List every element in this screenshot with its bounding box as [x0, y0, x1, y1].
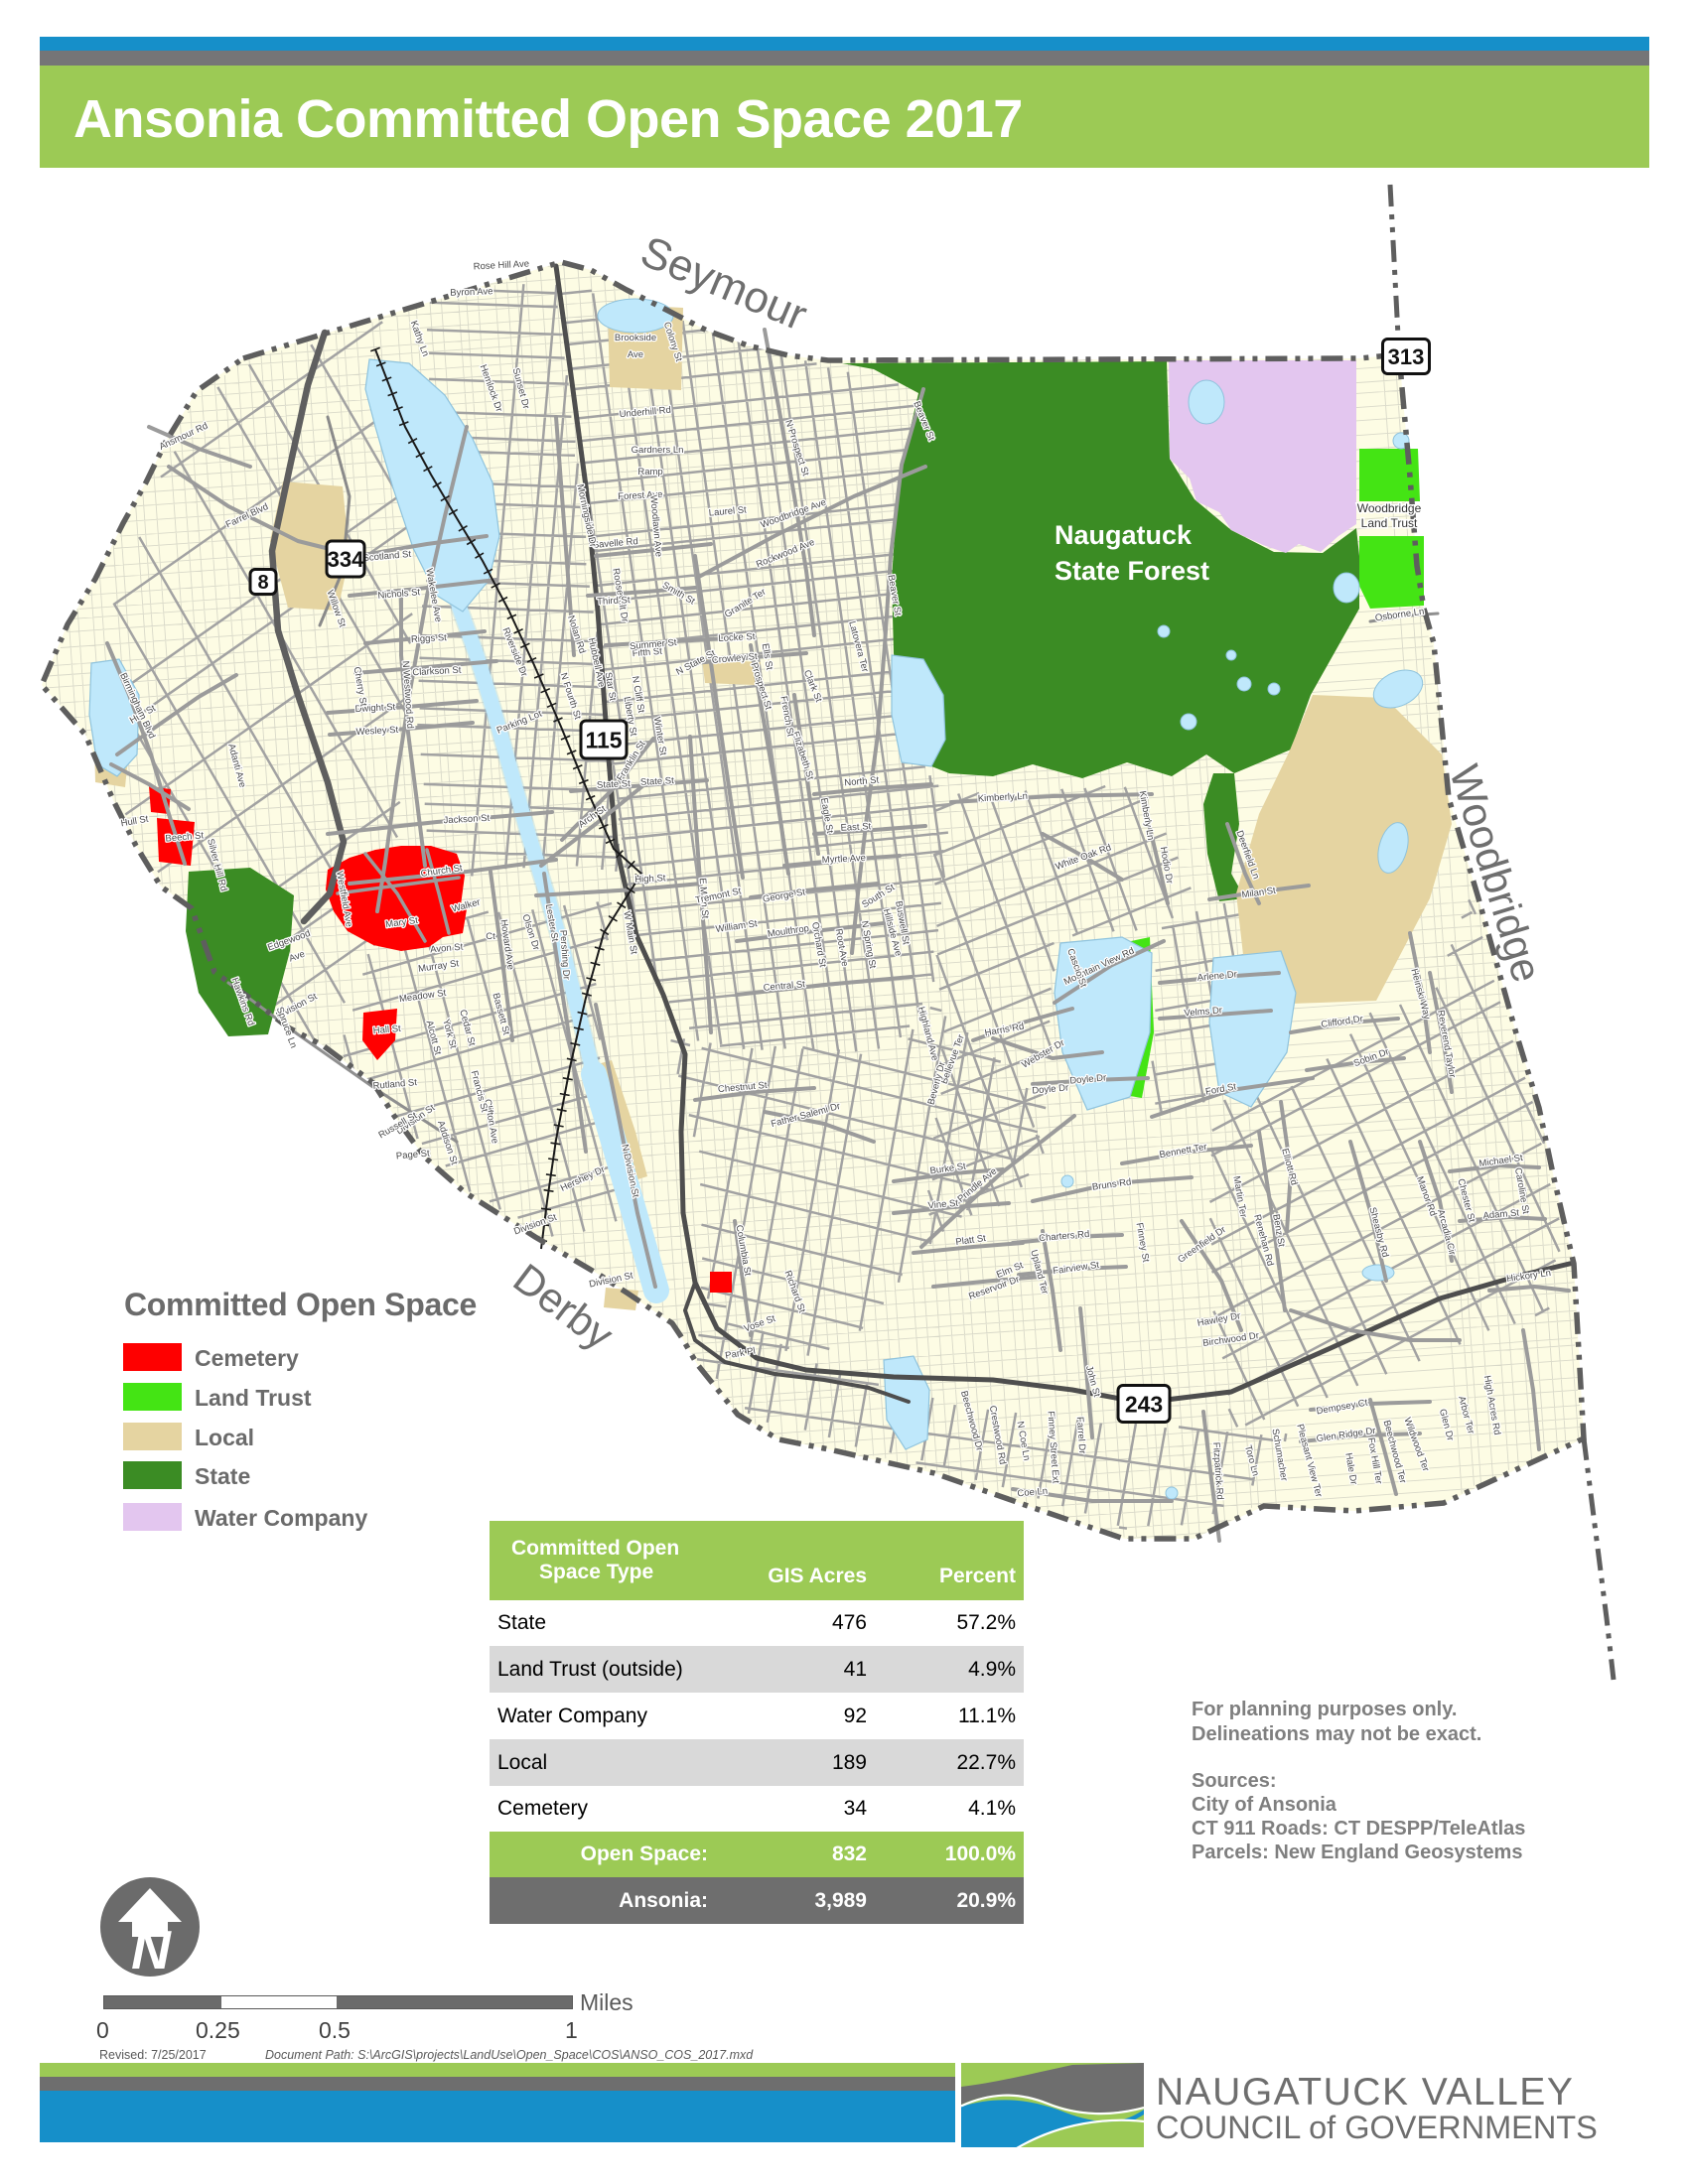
svg-text:Ramp: Ramp: [637, 467, 662, 478]
svg-text:East St: East St: [840, 821, 872, 834]
svg-text:N: N: [131, 1919, 172, 1979]
svg-text:334: 334: [328, 547, 364, 572]
svg-text:State Forest: State Forest: [1055, 556, 1209, 586]
svg-text:Ave: Ave: [628, 349, 643, 360]
svg-text:State St: State St: [640, 775, 675, 788]
svg-text:Riggs St: Riggs St: [411, 632, 448, 645]
svg-text:Woodbridge: Woodbridge: [1357, 501, 1422, 515]
svg-text:Land Trust: Land Trust: [1361, 516, 1418, 530]
svg-text:Ct: Ct: [486, 931, 495, 942]
svg-text:Brookside: Brookside: [615, 333, 656, 343]
svg-text:243: 243: [1125, 1391, 1163, 1417]
svg-text:State St: State St: [597, 778, 632, 791]
svg-text:Myrtle Ave: Myrtle Ave: [822, 853, 867, 866]
svg-text:Page St: Page St: [395, 1149, 430, 1162]
svg-text:Wesley St: Wesley St: [355, 725, 398, 738]
svg-text:Rose Hill Ave: Rose Hill Ave: [473, 259, 529, 273]
svg-text:Locke St: Locke St: [718, 631, 756, 644]
svg-text:115: 115: [585, 727, 622, 752]
svg-text:High St: High St: [634, 873, 666, 886]
svg-text:Byron Ave: Byron Ave: [450, 286, 492, 298]
svg-text:313: 313: [1388, 344, 1425, 369]
svg-text:8: 8: [257, 572, 268, 594]
svg-text:Gardners Ln: Gardners Ln: [632, 445, 684, 456]
svg-text:Naugatuck: Naugatuck: [1055, 520, 1193, 550]
svg-text:Third St: Third St: [597, 595, 631, 608]
